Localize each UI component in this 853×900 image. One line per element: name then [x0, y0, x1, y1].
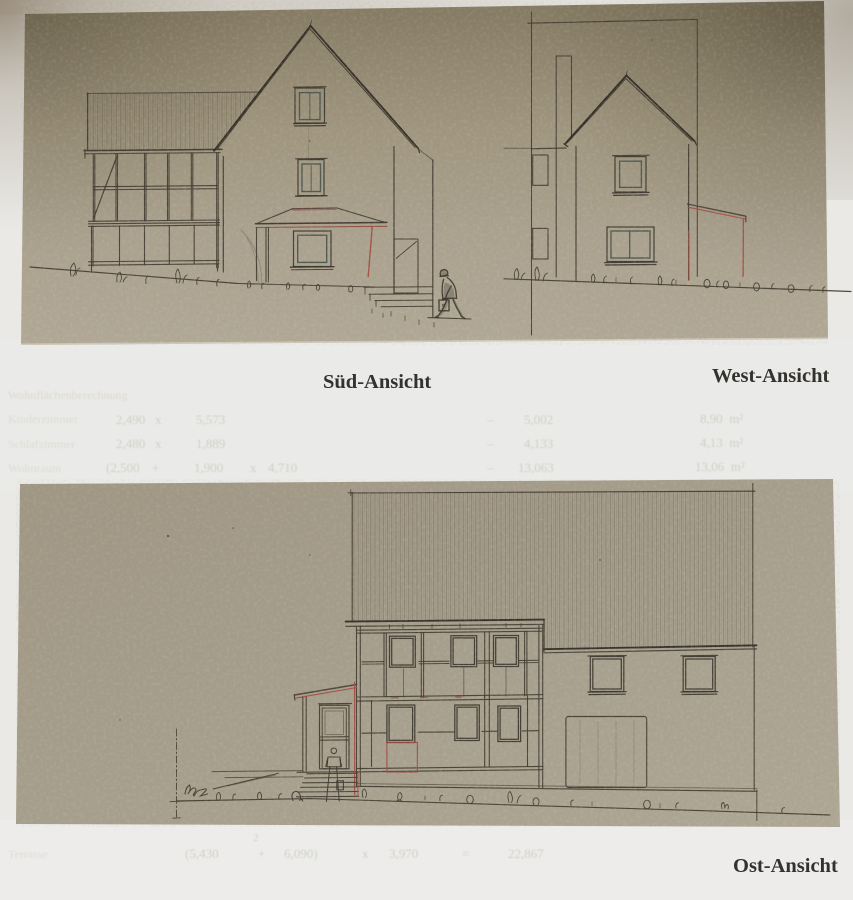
svg-text:6,090): 6,090): [284, 846, 318, 861]
svg-text:x: x: [155, 412, 162, 427]
svg-text:(5,430: (5,430: [185, 846, 219, 861]
svg-text:22,867: 22,867: [508, 846, 544, 861]
svg-text:4,133: 4,133: [524, 436, 553, 451]
svg-text:Kinderzimmer: Kinderzimmer: [8, 412, 78, 426]
svg-text:5,002: 5,002: [524, 412, 553, 427]
svg-text:3,970: 3,970: [389, 846, 418, 861]
svg-text:+: +: [258, 846, 265, 861]
svg-text:13,063: 13,063: [518, 460, 554, 475]
svg-text:4,13 m²: 4,13 m²: [700, 435, 743, 450]
svg-text:2,490: 2,490: [116, 412, 145, 427]
svg-text:Wohnraum: Wohnraum: [8, 461, 62, 475]
svg-text:x: x: [155, 436, 162, 451]
svg-text:(2,500: (2,500: [106, 460, 140, 475]
svg-text:x: x: [250, 460, 257, 475]
svg-text:Ost-Ansicht: Ost-Ansicht: [733, 855, 838, 877]
svg-text:Wohnflächenberechnung: Wohnflächenberechnung: [8, 388, 128, 402]
svg-text:x: x: [362, 846, 369, 861]
svg-text:+: +: [152, 460, 159, 475]
svg-text:–: –: [486, 460, 494, 475]
svg-text:2: 2: [253, 832, 259, 844]
svg-text:2,480: 2,480: [116, 436, 145, 451]
svg-text:West-Ansicht: West-Ansicht: [712, 365, 829, 387]
svg-text:–: –: [486, 412, 494, 427]
svg-text:Schlafzimmer: Schlafzimmer: [8, 437, 75, 451]
svg-text:4,710: 4,710: [268, 460, 297, 475]
svg-text:13,06 m²: 13,06 m²: [695, 459, 745, 474]
svg-text:=: =: [462, 846, 469, 861]
svg-text:Terrasse: Terrasse: [8, 847, 48, 861]
svg-text:8,90 m²: 8,90 m²: [700, 411, 743, 426]
svg-text:Süd-Ansicht: Süd-Ansicht: [323, 371, 431, 393]
svg-text:1,900: 1,900: [194, 460, 223, 475]
svg-text:–: –: [486, 436, 494, 451]
svg-text:1,889: 1,889: [196, 436, 225, 451]
svg-text:5,573: 5,573: [196, 412, 225, 427]
